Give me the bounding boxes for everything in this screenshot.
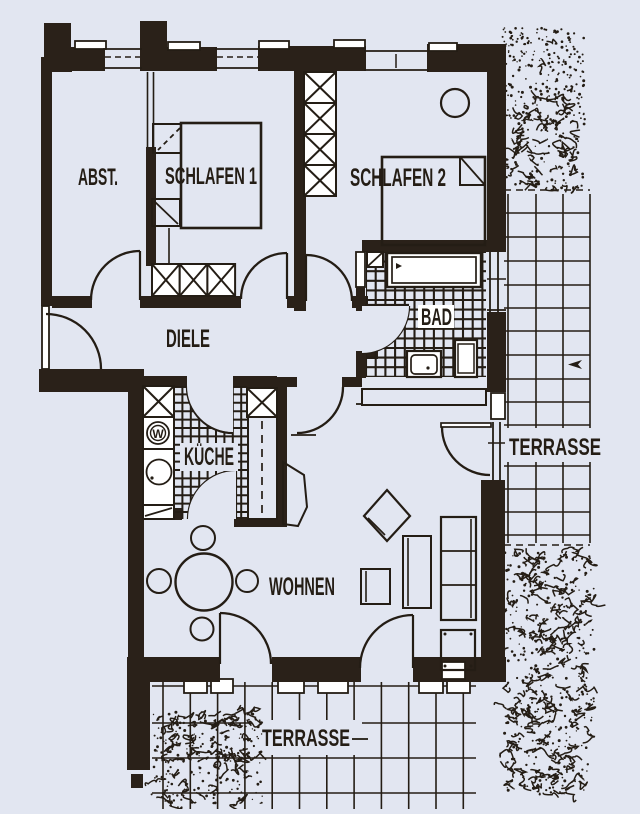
svg-text:KÜCHE: KÜCHE: [184, 442, 234, 471]
svg-text:DIELE: DIELE: [166, 325, 210, 353]
svg-text:SCHLAFEN 2: SCHLAFEN 2: [350, 164, 446, 192]
svg-text:TERRASSE: TERRASSE: [509, 434, 601, 461]
svg-text:ABST.: ABST.: [78, 164, 118, 191]
svg-text:SCHLAFEN 1: SCHLAFEN 1: [165, 163, 257, 190]
svg-text:BAD: BAD: [421, 304, 452, 331]
svg-text:W: W: [152, 427, 164, 441]
svg-text:WOHNEN: WOHNEN: [269, 573, 335, 601]
svg-text:TERRASSE: TERRASSE: [262, 725, 350, 752]
